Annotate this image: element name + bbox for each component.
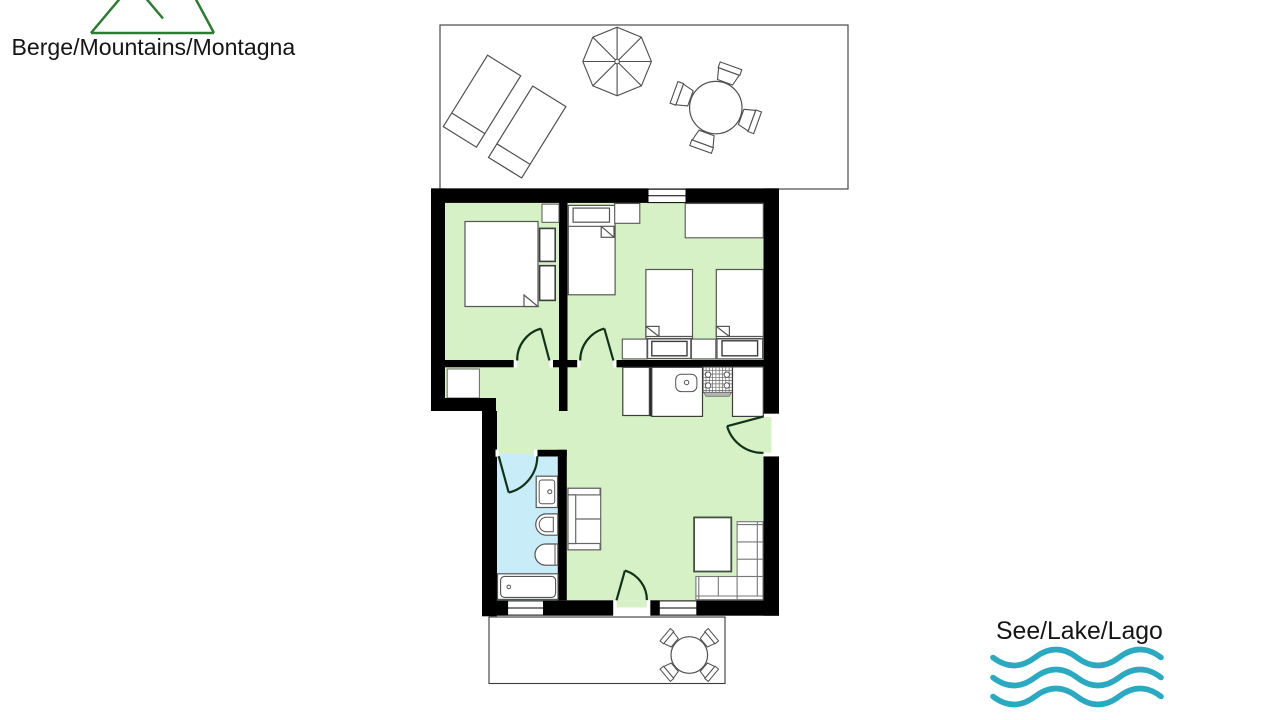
svg-text:Berge/Mountains/Montagna: Berge/Mountains/Montagna: [12, 34, 296, 60]
svg-text:See/Lake/Lago: See/Lake/Lago: [996, 618, 1163, 645]
